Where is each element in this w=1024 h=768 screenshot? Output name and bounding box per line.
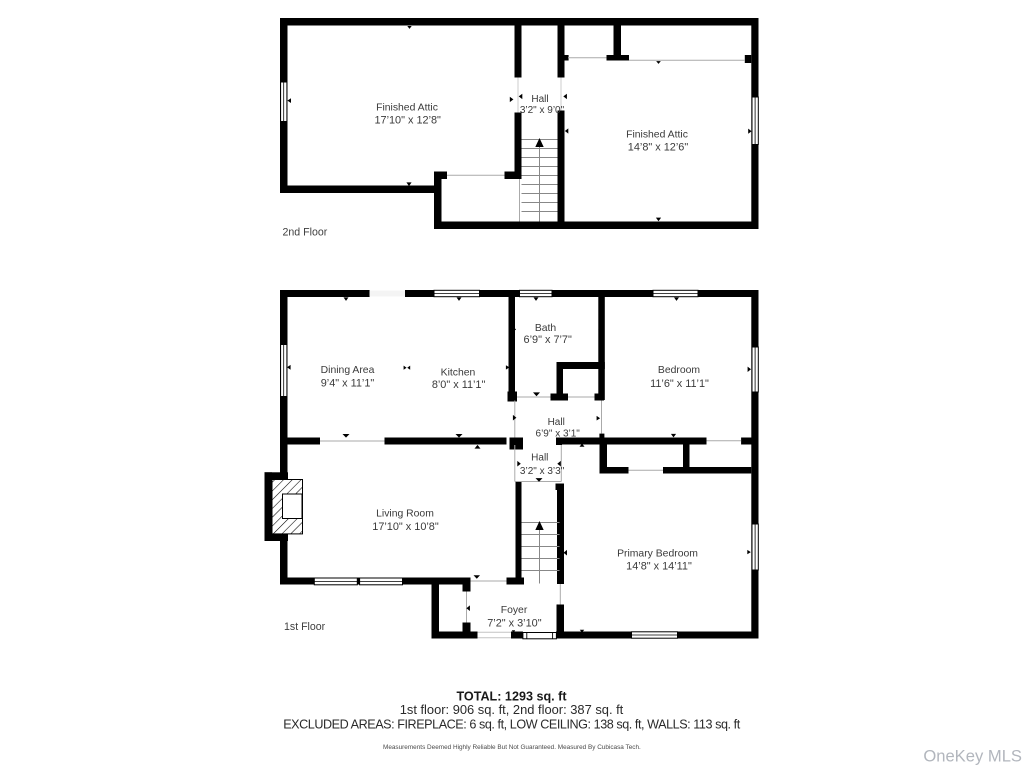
svg-text:17’10" x 12’8": 17’10" x 12’8" bbox=[374, 115, 441, 127]
svg-text:EXCLUDED AREAS: FIREPLACE: 6 s: EXCLUDED AREAS: FIREPLACE: 6 sq. ft, LOW… bbox=[283, 718, 741, 732]
svg-text:Hall: Hall bbox=[531, 452, 548, 463]
svg-text:14’8" x 14’11": 14’8" x 14’11" bbox=[626, 560, 692, 572]
svg-text:9’4" x 11’1": 9’4" x 11’1" bbox=[321, 378, 375, 390]
svg-text:1st floor: 906 sq. ft, 2nd flo: 1st floor: 906 sq. ft, 2nd floor: 387 sq… bbox=[400, 702, 624, 717]
svg-text:3’2" x 9’0": 3’2" x 9’0" bbox=[520, 105, 565, 116]
svg-text:Hall: Hall bbox=[531, 94, 548, 105]
svg-text:Primary Bedroom: Primary Bedroom bbox=[617, 548, 698, 559]
svg-text:3’2" x 3’3": 3’2" x 3’3" bbox=[520, 466, 565, 477]
svg-text:6’9" x 7’7": 6’9" x 7’7" bbox=[524, 334, 572, 346]
svg-text:8’0" x 11’1": 8’0" x 11’1" bbox=[432, 379, 486, 391]
svg-text:6’9" x 3’1": 6’9" x 3’1" bbox=[536, 429, 581, 440]
svg-text:7’2" x 3’10": 7’2" x 3’10" bbox=[487, 618, 541, 630]
svg-text:1st Floor: 1st Floor bbox=[284, 621, 326, 633]
svg-text:Finished Attic: Finished Attic bbox=[376, 103, 438, 114]
svg-text:Finished Attic: Finished Attic bbox=[626, 130, 688, 141]
svg-text:14’8" x 12’6": 14’8" x 12’6" bbox=[628, 142, 689, 154]
svg-text:Hall: Hall bbox=[548, 417, 565, 428]
svg-text:Foyer: Foyer bbox=[501, 605, 528, 616]
svg-text:Bath: Bath bbox=[535, 323, 557, 334]
svg-text:2nd Floor: 2nd Floor bbox=[283, 226, 328, 238]
svg-text:Kitchen: Kitchen bbox=[441, 367, 476, 378]
svg-text:17’10" x 10’8": 17’10" x 10’8" bbox=[372, 521, 439, 533]
svg-text:Measurements Deemed Highly Rel: Measurements Deemed Highly Reliable But … bbox=[383, 744, 641, 751]
svg-text:Bedroom: Bedroom bbox=[658, 365, 700, 376]
svg-text:Living Room: Living Room bbox=[376, 508, 434, 519]
svg-text:OneKey MLS: OneKey MLS bbox=[923, 747, 1022, 766]
svg-text:Dining Area: Dining Area bbox=[321, 365, 375, 376]
svg-text:11’6" x 11’1": 11’6" x 11’1" bbox=[650, 378, 709, 390]
